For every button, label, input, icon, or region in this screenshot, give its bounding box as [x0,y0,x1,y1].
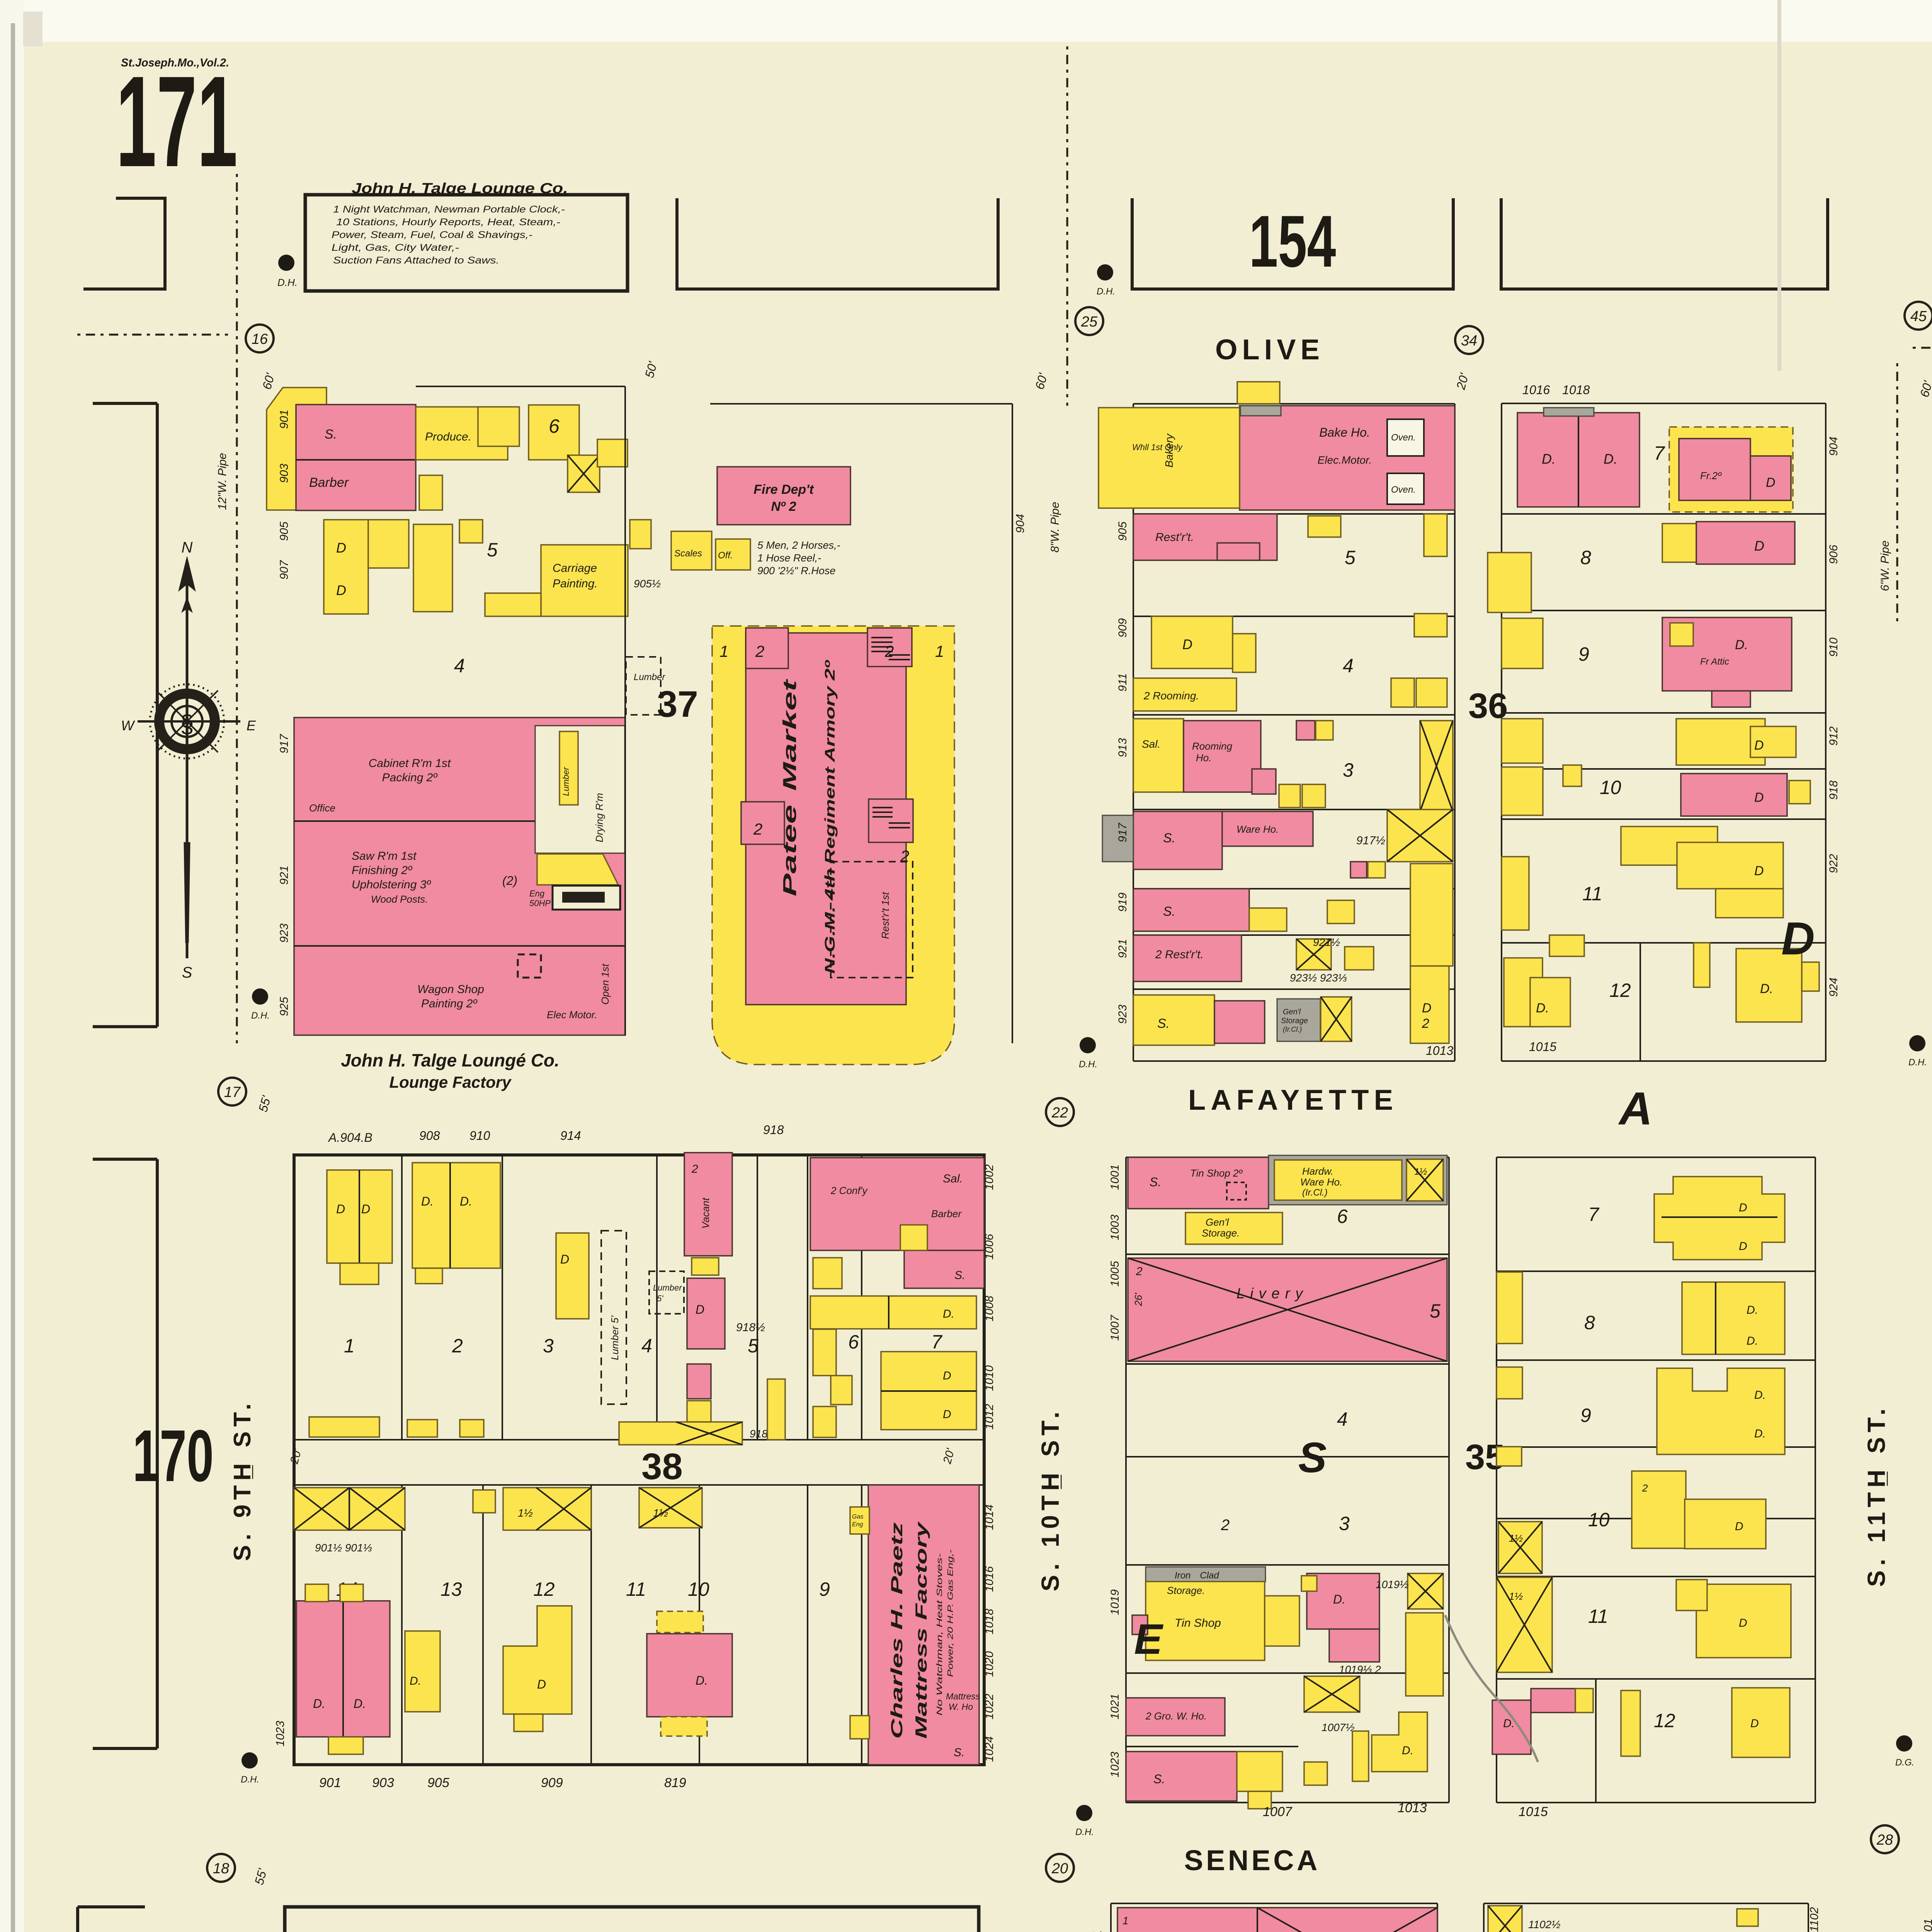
svg-text:905: 905 [278,522,291,541]
svg-text:904: 904 [1827,437,1840,456]
svg-text:Cabinet R'm 1st: Cabinet R'm 1st [369,757,451,770]
svg-text:7: 7 [1588,1204,1600,1225]
svg-text:Rooming: Rooming [1192,740,1233,752]
svg-text:Suction Fans Attached to Saws.: Suction Fans Attached to Saws. [333,255,499,266]
svg-text:W: W [121,718,135,733]
svg-text:D.H.: D.H. [251,1010,270,1021]
svg-text:1: 1 [344,1335,355,1357]
svg-text:S.: S. [1150,1175,1161,1189]
svg-text:D: D [1750,1717,1759,1730]
svg-text:9: 9 [1578,643,1589,665]
svg-text:D: D [336,582,346,598]
svg-text:Eng: Eng [852,1521,863,1528]
svg-text:12: 12 [1654,1710,1675,1731]
svg-text:1101: 1101 [1091,1930,1104,1932]
svg-text:5: 5 [487,539,498,561]
svg-text:3: 3 [543,1335,554,1357]
svg-text:§: § [180,710,194,738]
svg-text:D.: D. [943,1308,954,1320]
svg-text:914: 914 [560,1129,581,1143]
svg-text:Elec Motor.: Elec Motor. [547,1009,597,1020]
svg-text:S.: S. [1157,1016,1170,1031]
svg-text:901: 901 [278,410,291,429]
svg-text:9: 9 [1580,1405,1591,1426]
svg-text:6: 6 [848,1331,859,1353]
svg-text:903: 903 [278,464,291,483]
svg-text:Fire Dep't: Fire Dep't [753,482,814,497]
svg-text:1002: 1002 [983,1164,996,1190]
svg-text:D.: D. [696,1673,708,1687]
svg-text:1015: 1015 [1529,1040,1556,1054]
svg-text:20: 20 [1051,1861,1068,1877]
svg-text:2: 2 [1642,1482,1648,1494]
svg-text:8: 8 [1580,547,1591,568]
svg-text:26': 26' [1133,1293,1144,1306]
svg-text:Power, Steam, Fuel, Coal & Sha: Power, Steam, Fuel, Coal & Shavings,- [332,230,532,240]
svg-text:1019: 1019 [1109,1589,1121,1615]
svg-text:7: 7 [1654,442,1665,464]
svg-text:28: 28 [1876,1832,1893,1848]
svg-text:1: 1 [935,642,944,660]
svg-text:Gas: Gas [852,1514,863,1520]
svg-text:2: 2 [691,1163,698,1175]
svg-text:Whll 1st Only: Whll 1st Only [1132,442,1183,452]
svg-text:1102: 1102 [1808,1907,1821,1932]
svg-text:S.: S. [325,427,337,442]
svg-text:909: 909 [541,1776,563,1790]
svg-text:Scales: Scales [674,548,702,559]
svg-text:2: 2 [1136,1265,1143,1278]
svg-text:1½: 1½ [518,1507,533,1519]
svg-text:910: 910 [469,1129,490,1143]
svg-text:1003: 1003 [1109,1214,1121,1240]
svg-text:2 Conf'y: 2 Conf'y [830,1185,868,1196]
svg-text:901½ 901⅓: 901½ 901⅓ [315,1542,372,1554]
svg-text:1020: 1020 [983,1651,996,1677]
svg-text:909: 909 [1116,618,1129,638]
svg-text:45: 45 [1910,308,1927,325]
svg-text:918: 918 [763,1123,784,1137]
svg-text:5: 5 [748,1335,759,1357]
svg-text:Livery: Livery [1236,1286,1308,1302]
svg-text:Mattress: Mattress [946,1691,980,1701]
svg-text:Power, 20 H.P. Gas Eng,-: Power, 20 H.P. Gas Eng,- [946,1549,955,1677]
svg-text:1016: 1016 [983,1566,996,1592]
svg-text:D: D [1781,913,1815,964]
svg-text:903: 903 [372,1776,394,1790]
svg-text:1023: 1023 [274,1721,287,1747]
svg-text:2 Gro. W. Ho.: 2 Gro. W. Ho. [1145,1710,1207,1722]
svg-text:S: S [182,964,192,981]
svg-text:OLIVE: OLIVE [1215,333,1320,366]
svg-text:Carriage: Carriage [553,562,597,575]
svg-text:S. 9TH̲ ST.: S. 9TH̲ ST. [229,1399,256,1561]
svg-text:918: 918 [1827,781,1840,800]
svg-text:D: D [537,1677,546,1691]
svg-text:919: 919 [1116,893,1129,912]
svg-text:John H. Talge Loungé Co.: John H. Talge Loungé Co. [341,1050,560,1070]
svg-text:5': 5' [657,1294,663,1303]
svg-text:918½: 918½ [736,1321,765,1334]
svg-text:S.: S. [1153,1772,1165,1786]
svg-text:D: D [1754,864,1764,878]
svg-text:2: 2 [755,642,764,660]
svg-text:D.H.: D.H. [1908,1057,1927,1068]
svg-text:18: 18 [213,1861,229,1877]
svg-text:1016 1018: 1016 1018 [1522,383,1590,397]
svg-text:Produce.: Produce. [425,430,471,443]
svg-text:7: 7 [931,1331,943,1353]
svg-text:D: D [361,1202,370,1216]
svg-text:D.: D. [1333,1592,1345,1606]
svg-text:D: D [943,1408,951,1421]
svg-text:22: 22 [1051,1105,1068,1121]
svg-text:D.: D. [1747,1304,1758,1316]
svg-text:904: 904 [1014,514,1027,533]
svg-text:906: 906 [1827,545,1840,564]
svg-text:4: 4 [1343,655,1354,677]
svg-text:11: 11 [1588,1605,1608,1627]
svg-text:2: 2 [1221,1517,1230,1534]
svg-text:1001: 1001 [1109,1164,1121,1190]
svg-text:12: 12 [533,1578,555,1600]
svg-text:Tin Shop: Tin Shop [1175,1617,1221,1629]
svg-text:4: 4 [1337,1408,1348,1430]
svg-text:Iron Clad: Iron Clad [1175,1570,1219,1581]
svg-text:1013: 1013 [1426,1044,1453,1058]
svg-text:Sal.: Sal. [1142,738,1160,750]
svg-text:W. Ho: W. Ho [949,1702,973,1712]
svg-text:1 Hose Reel,-: 1 Hose Reel,- [757,552,821,564]
svg-text:13: 13 [440,1578,462,1600]
svg-text:D.G.: D.G. [1895,1757,1914,1768]
svg-text:1013: 1013 [1398,1801,1427,1815]
svg-text:D.H.: D.H. [277,277,298,288]
svg-text:D.H.: D.H. [1079,1059,1097,1070]
svg-text:D: D [696,1303,704,1316]
svg-text:Painting.: Painting. [553,577,598,590]
svg-text:2 Rest'r't.: 2 Rest'r't. [1155,948,1204,961]
svg-text:Sal.: Sal. [943,1172,963,1185]
svg-text:6: 6 [549,415,560,437]
svg-text:1022: 1022 [983,1694,996,1719]
svg-text:D: D [943,1369,951,1382]
svg-text:6"W. Pipe: 6"W. Pipe [1879,541,1891,591]
svg-text:10 Stations, Hourly Reports, H: 10 Stations, Hourly Reports, Heat, Steam… [336,217,560,228]
svg-text:D.: D. [1536,1001,1549,1015]
svg-text:Ware Ho.: Ware Ho. [1236,823,1279,835]
svg-text:D.: D. [410,1675,421,1687]
svg-text:917½: 917½ [1356,834,1385,847]
svg-text:Nº 2: Nº 2 [771,499,796,514]
svg-text:Lounge Factory: Lounge Factory [389,1073,512,1091]
svg-text:S.: S. [954,1746,964,1759]
svg-text:170: 170 [133,1415,214,1497]
svg-text:D.: D. [1754,1389,1766,1401]
svg-text:Painting 2º: Painting 2º [421,997,478,1010]
svg-text:D: D [1754,790,1764,805]
svg-text:D: D [1766,475,1776,490]
svg-text:911: 911 [1116,673,1129,692]
svg-text:D: D [1754,738,1764,753]
svg-text:Barber: Barber [309,475,349,490]
svg-text:5: 5 [1430,1300,1440,1322]
svg-text:D.: D. [460,1194,472,1208]
svg-text:D: D [1422,1001,1432,1015]
svg-text:38: 38 [641,1446,683,1487]
svg-text:Rest'r't.: Rest'r't. [1155,531,1194,544]
svg-text:819: 819 [664,1776,686,1790]
svg-text:Patee Market: Patee Market [780,679,800,896]
svg-text:924: 924 [1827,978,1840,997]
svg-text:912: 912 [1827,726,1840,746]
svg-text:913: 913 [1116,738,1129,757]
svg-text:37: 37 [657,684,698,725]
svg-text:Gen'l: Gen'l [1206,1216,1229,1228]
svg-text:A: A [1618,1083,1653,1134]
svg-text:1010: 1010 [983,1365,996,1391]
svg-text:D.: D. [1604,451,1617,467]
svg-text:4: 4 [454,655,465,677]
svg-text:Drying R'm: Drying R'm [594,793,605,842]
svg-text:1014: 1014 [983,1504,996,1530]
svg-text:Packing 2º: Packing 2º [382,771,438,784]
svg-text:Upholstering 3º: Upholstering 3º [352,878,431,891]
svg-text:1: 1 [1122,1915,1129,1927]
svg-text:Off.: Off. [718,550,733,561]
svg-text:11: 11 [626,1578,646,1600]
svg-text:1½: 1½ [653,1507,668,1519]
svg-text:9: 9 [819,1578,830,1600]
svg-text:1102½: 1102½ [1528,1918,1561,1930]
svg-text:8: 8 [1584,1312,1595,1333]
svg-text:1007: 1007 [1263,1804,1293,1819]
svg-text:905: 905 [427,1776,449,1790]
svg-text:T: T [823,1927,854,1932]
svg-text:905½: 905½ [634,578,661,590]
svg-text:Ware Ho.: Ware Ho. [1300,1176,1342,1188]
svg-text:1005: 1005 [1109,1261,1121,1287]
svg-text:Saw R'm 1st: Saw R'm 1st [352,850,417,862]
svg-text:925: 925 [278,997,291,1016]
svg-text:905: 905 [1116,522,1129,541]
svg-text:4: 4 [641,1335,652,1357]
svg-text:Oven.: Oven. [1391,432,1416,443]
svg-text:3: 3 [1339,1513,1350,1534]
svg-text:34: 34 [1461,333,1477,349]
svg-text:N: N [182,539,193,556]
svg-text:S.: S. [1163,831,1175,845]
svg-text:D: D [1739,1201,1747,1214]
svg-text:S: S [1298,1434,1327,1481]
svg-text:S.: S. [954,1269,965,1282]
svg-text:917: 917 [278,734,291,753]
svg-text:11: 11 [1582,883,1602,905]
svg-text:(2): (2) [502,874,517,888]
svg-text:N.G.M. 4th Regiment Armory 2º: N.G.M. 4th Regiment Armory 2º [822,660,838,974]
svg-text:923½ 923⅓: 923½ 923⅓ [1290,972,1347,984]
svg-text:D.: D. [1542,451,1556,467]
svg-text:Vacant: Vacant [700,1197,711,1229]
svg-text:D.H.: D.H. [1075,1827,1094,1837]
svg-text:Wood Posts.: Wood Posts. [371,893,428,905]
svg-text:Lumber 5': Lumber 5' [609,1315,621,1360]
svg-text:Elec.Motor.: Elec.Motor. [1318,454,1372,466]
svg-text:No Watchman, Heat Stoves-: No Watchman, Heat Stoves- [935,1553,944,1716]
svg-text:10: 10 [688,1578,709,1600]
svg-text:2: 2 [884,642,894,660]
svg-text:8"W. Pipe: 8"W. Pipe [1049,502,1061,553]
svg-text:17: 17 [224,1084,241,1100]
svg-text:D: D [560,1252,569,1266]
svg-text:910: 910 [1827,638,1840,657]
svg-text:D.: D. [1754,1427,1766,1440]
svg-text:S. 10TH̲ ST.: S. 10TH̲ ST. [1036,1407,1064,1592]
svg-text:D: D [1182,636,1192,652]
svg-text:D.: D. [313,1697,325,1711]
svg-text:Storage.: Storage. [1202,1227,1240,1239]
svg-text:901: 901 [319,1776,341,1790]
svg-text:D.: D. [421,1194,434,1208]
svg-text:900 '2½" R.Hose: 900 '2½" R.Hose [757,565,835,577]
svg-text:D.: D. [1735,638,1748,652]
svg-text:16: 16 [252,331,268,347]
svg-text:E: E [1134,1616,1164,1663]
svg-text:923: 923 [278,923,291,943]
svg-text:(Ir.Cl.): (Ir.Cl.) [1302,1187,1328,1198]
svg-text:171: 171 [116,49,238,194]
svg-text:1½: 1½ [1414,1167,1427,1177]
svg-text:25: 25 [1081,314,1098,330]
svg-text:922: 922 [1827,854,1840,873]
svg-text:Ho.: Ho. [1196,752,1211,764]
svg-text:D.: D. [1402,1744,1413,1757]
svg-text:1018: 1018 [983,1609,996,1634]
svg-text:D.H.: D.H. [1097,286,1115,297]
svg-text:(Ir.Cl.): (Ir.Cl.) [1283,1026,1302,1033]
svg-text:2 Rooming.: 2 Rooming. [1143,690,1199,702]
svg-text:921½: 921½ [1313,936,1340,948]
svg-text:Charles H. Paetz: Charles H. Paetz [888,1522,906,1739]
svg-text:1 Night Watchman, Newman Porta: 1 Night Watchman, Newman Portable Clock,… [333,204,565,215]
svg-text:5: 5 [1345,547,1355,568]
svg-text:D: D [1754,538,1764,554]
svg-text:6: 6 [1337,1206,1348,1227]
svg-text:10: 10 [1600,777,1621,798]
svg-text:Lumber: Lumber [634,672,665,682]
svg-text:Lumber: Lumber [561,767,571,796]
svg-text:Gen'l: Gen'l [1283,1008,1301,1016]
svg-text:921: 921 [1116,939,1129,958]
svg-text:Fr.2º: Fr.2º [1700,470,1722,481]
svg-text:Finishing 2º: Finishing 2º [352,864,413,877]
svg-text:S. 11TH̲ ST.: S. 11TH̲ ST. [1862,1404,1890,1587]
svg-text:1021: 1021 [1109,1694,1121,1719]
svg-text:1101: 1101 [1922,1918,1932,1932]
svg-text:Eng: Eng [529,889,545,898]
svg-text:Bake Ho.: Bake Ho. [1319,425,1370,439]
svg-text:12"W. Pipe: 12"W. Pipe [216,453,229,510]
svg-text:921: 921 [278,866,291,885]
svg-text:Light, Gas, City Water,-: Light, Gas, City Water,- [332,242,459,253]
svg-text:Storage.: Storage. [1167,1585,1205,1596]
svg-text:D: D [1739,1240,1747,1253]
svg-text:D.: D. [1760,981,1773,996]
svg-text:1024: 1024 [983,1736,996,1762]
svg-text:3: 3 [1343,759,1354,781]
svg-text:1007: 1007 [1109,1315,1121,1341]
svg-text:907: 907 [278,560,291,580]
svg-text:1019⅓ 2: 1019⅓ 2 [1339,1663,1381,1675]
svg-text:John H. Talge Lounge Co.: John H. Talge Lounge Co. [352,180,568,197]
svg-text:D: D [336,1202,345,1216]
svg-text:917: 917 [1116,823,1129,842]
svg-text:1½: 1½ [1509,1532,1523,1544]
svg-text:Mattress Factory: Mattress Factory [912,1521,930,1739]
svg-text:D: D [336,540,346,556]
svg-text:1019½: 1019½ [1376,1578,1409,1590]
svg-text:2: 2 [753,820,762,838]
svg-text:A.904.B: A.904.B [328,1131,372,1145]
svg-text:S.: S. [1163,904,1175,919]
svg-text:LAFAYETTE: LAFAYETTE [1188,1084,1393,1116]
svg-text:Wagon Shop: Wagon Shop [417,983,484,996]
svg-text:Tin Shop 2º: Tin Shop 2º [1190,1167,1243,1179]
svg-text:1007½: 1007½ [1321,1721,1355,1733]
svg-text:Barber: Barber [931,1208,962,1219]
svg-text:12: 12 [1609,980,1631,1001]
svg-text:D: D [1739,1617,1747,1629]
svg-text:908: 908 [419,1129,440,1143]
svg-text:Storage: Storage [1281,1017,1308,1025]
svg-text:923: 923 [1116,1005,1129,1024]
svg-text:Office: Office [309,802,335,814]
svg-text:Open 1st: Open 1st [599,963,611,1005]
svg-text:1008: 1008 [983,1296,996,1321]
svg-text:2: 2 [1422,1016,1429,1031]
svg-text:Fr Attic: Fr Attic [1700,656,1729,667]
svg-text:Oven.: Oven. [1391,485,1416,495]
svg-text:1015: 1015 [1519,1804,1548,1819]
svg-text:D.H.: D.H. [241,1774,259,1785]
svg-text:2: 2 [452,1335,463,1357]
svg-text:Hardw.: Hardw. [1302,1165,1333,1177]
svg-text:1: 1 [719,642,728,660]
svg-text:154: 154 [1249,201,1336,282]
svg-text:1006: 1006 [983,1234,996,1260]
svg-text:50HP: 50HP [529,898,551,908]
svg-text:Rest'r't 1st: Rest'r't 1st [879,891,891,939]
svg-text:D.: D. [354,1697,366,1711]
svg-text:1023: 1023 [1109,1752,1121,1777]
svg-text:Lumber: Lumber [653,1283,682,1293]
svg-text:1½: 1½ [1509,1590,1523,1602]
svg-text:5 Men, 2 Horses,-: 5 Men, 2 Horses,- [757,539,840,551]
svg-text:D: D [1735,1520,1743,1533]
svg-text:1012: 1012 [983,1404,996,1430]
svg-text:E: E [247,718,256,733]
svg-text:D.: D. [1747,1335,1758,1347]
svg-text:10: 10 [1588,1509,1610,1531]
